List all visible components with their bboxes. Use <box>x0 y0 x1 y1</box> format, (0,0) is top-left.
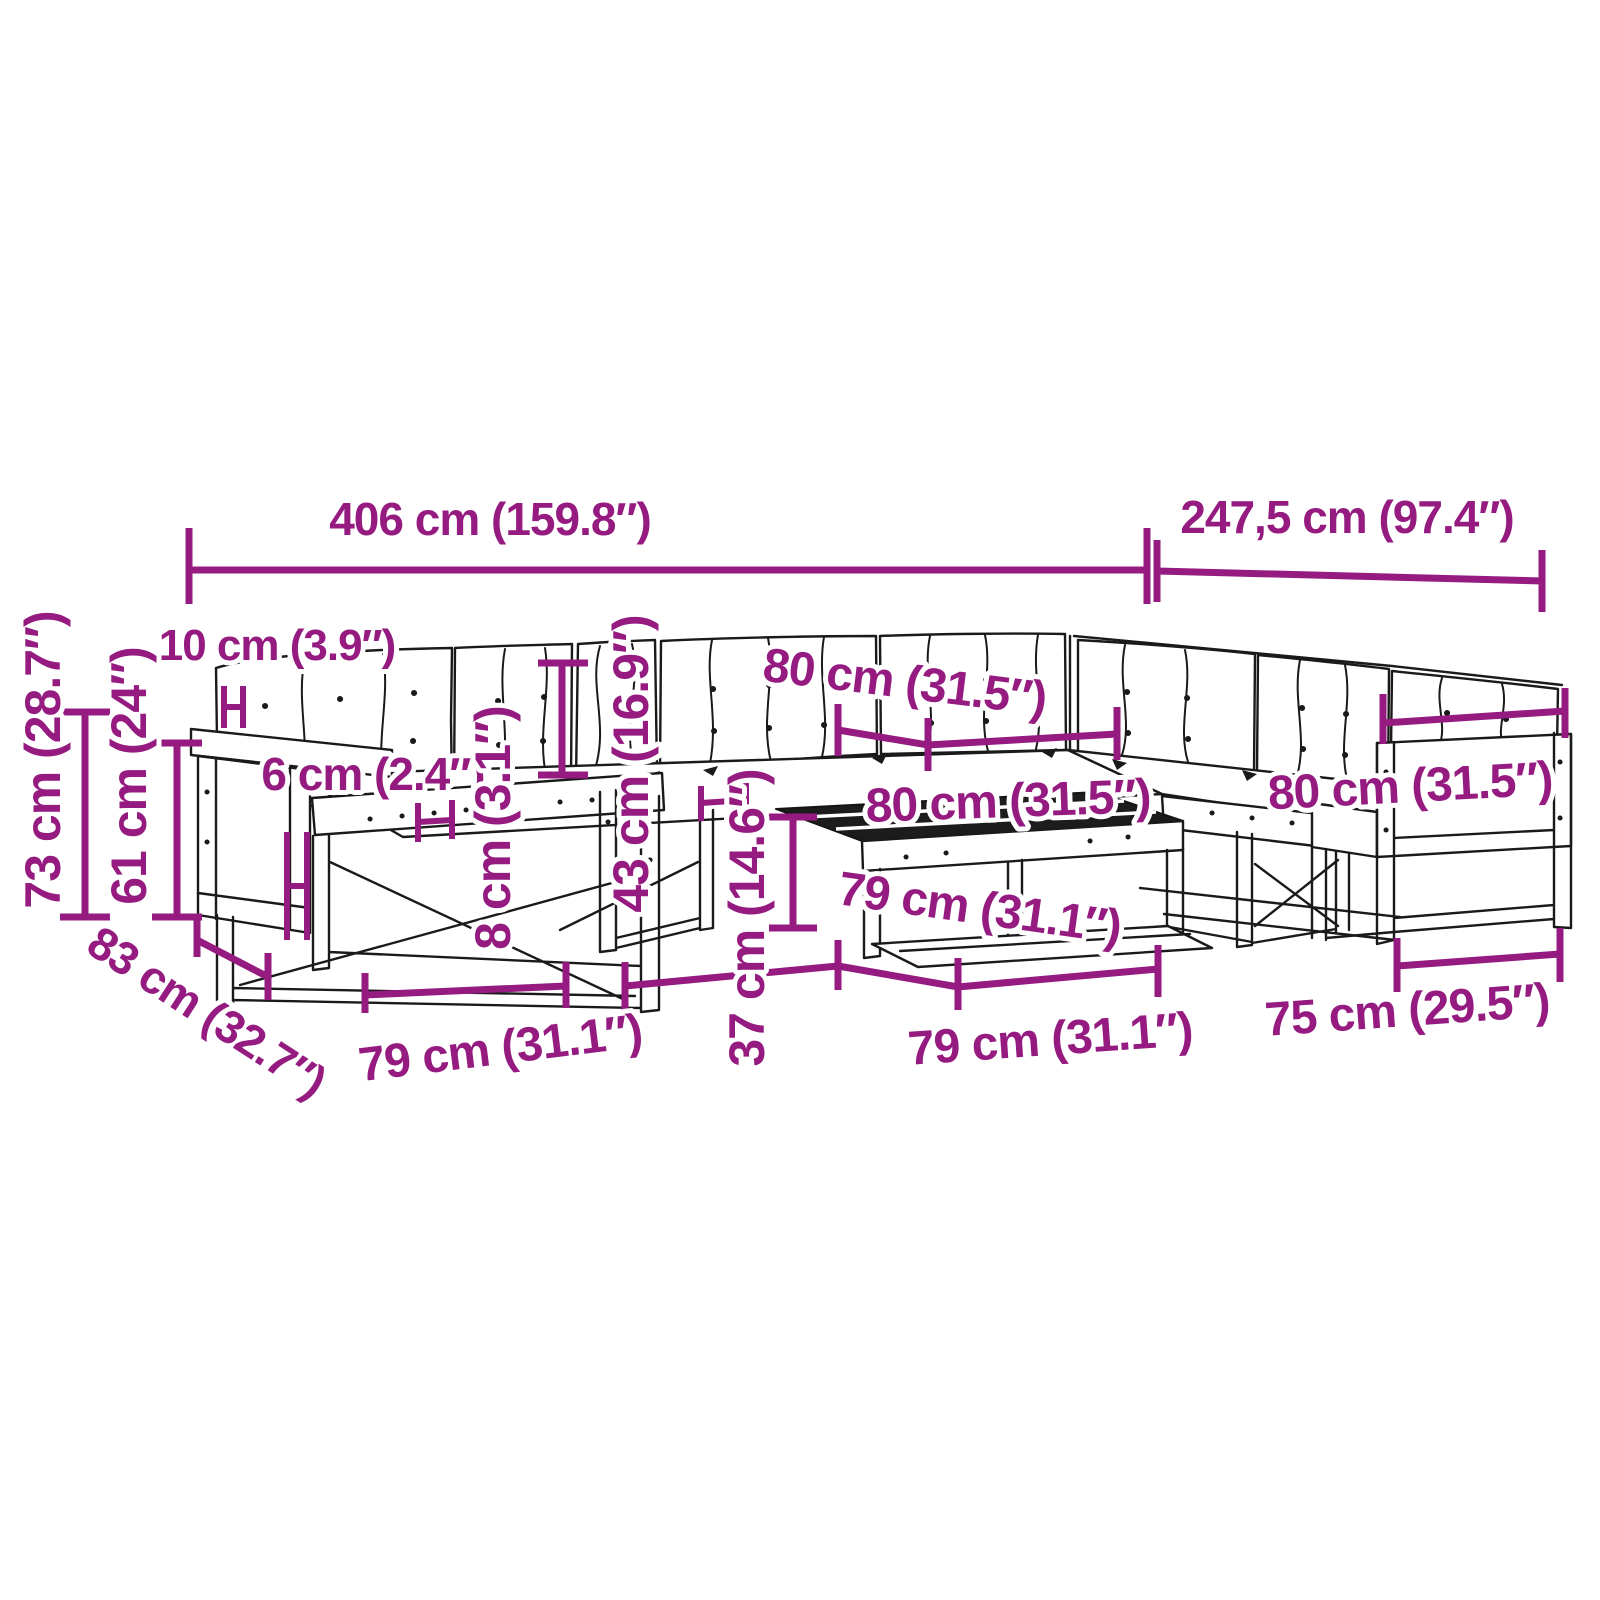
dim-line-armrest-height <box>152 743 202 917</box>
dim-label-armrest-height: 61 cm (24″) <box>101 647 157 905</box>
furniture-dimension-diagram: 406 cm (159.8″) 247,5 cm (97.4″) 73 cm (… <box>0 0 1600 1600</box>
dim-line-table-height <box>769 817 817 928</box>
dim-label-seat-cushion-thickness: 6 cm (2.4″) <box>261 748 484 800</box>
dim-label-table-height: 37 cm (14.6″) <box>719 769 775 1066</box>
dim-label-back-cushion-height: 43 cm (16.9″) <box>603 615 659 912</box>
dim-label-module-depth-front: 79 cm (31.1″) <box>356 1005 645 1092</box>
dim-label-seat-board-thickness: 8 cm (3.1″) <box>465 706 521 950</box>
dim-label-end-module-width: 75 cm (29.5″) <box>1263 974 1551 1047</box>
dim-label-back-cushion-thickness: 10 cm (3.9″) <box>159 621 396 670</box>
dim-label-table-front-length: 79 cm (31.1″) <box>906 1003 1194 1076</box>
dim-label-total-height: 73 cm (28.7″) <box>15 611 71 908</box>
diagram-canvas: 406 cm (159.8″) 247,5 cm (97.4″) 73 cm (… <box>0 0 1600 1600</box>
dim-label-total-depth: 247,5 cm (97.4″) <box>1180 491 1513 543</box>
dim-line-total-depth <box>1157 540 1542 612</box>
dim-label-total-width: 406 cm (159.8″) <box>329 493 651 545</box>
dim-label-module-width-middle: 80 cm (31.5″) <box>865 770 1152 833</box>
